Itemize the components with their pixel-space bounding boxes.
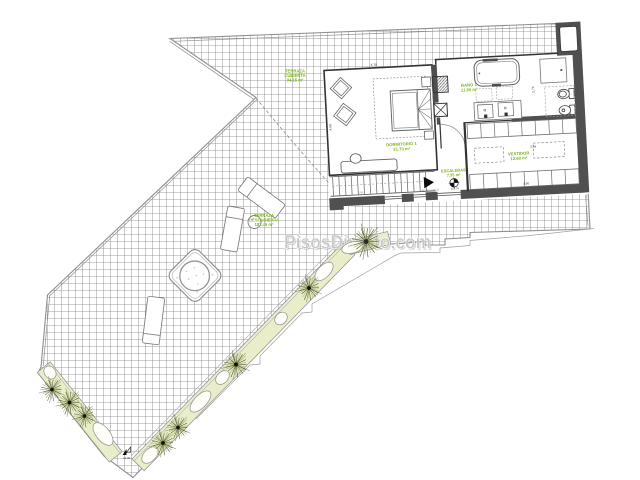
svg-text:34.15 m²: 34.15 m² [287, 78, 304, 83]
svg-text:4.68: 4.68 [328, 124, 332, 131]
svg-text:2.76: 2.76 [531, 86, 535, 93]
svg-text:458.76: 458.76 [451, 186, 460, 190]
svg-text:182.45 m²: 182.45 m² [254, 222, 274, 227]
svg-text:11.60 m²: 11.60 m² [461, 87, 478, 93]
svg-text:7.35 m²: 7.35 m² [447, 172, 462, 178]
svg-text:4.70: 4.70 [370, 63, 377, 67]
svg-text:5.04: 5.04 [358, 191, 363, 194]
svg-text:+0.00: +0.00 [123, 456, 131, 460]
svg-text:4.90: 4.90 [523, 181, 530, 185]
svg-text:2.94: 2.94 [530, 144, 537, 148]
svg-text:21.70 m²: 21.70 m² [393, 146, 411, 152]
svg-text:12.60 m²: 12.60 m² [510, 155, 528, 161]
